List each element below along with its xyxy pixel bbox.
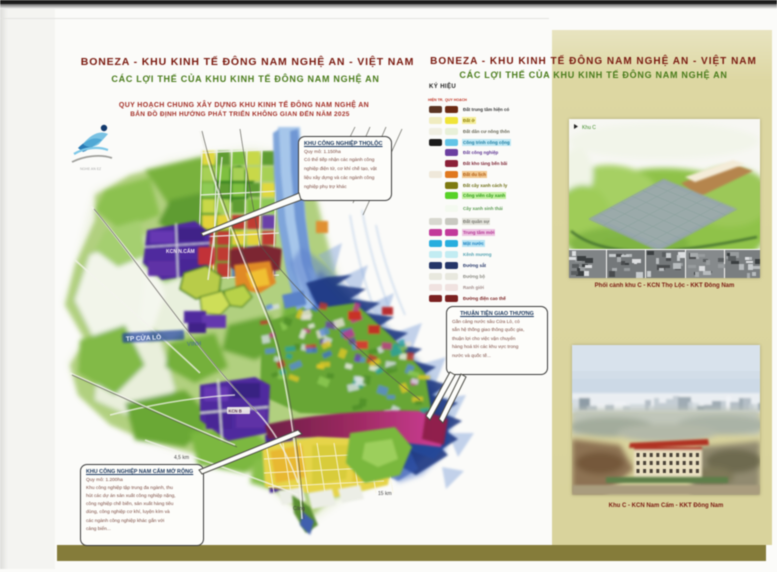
svg-text:Khu C: Khu C (582, 125, 596, 131)
svg-text:KCN B: KCN B (229, 409, 242, 414)
svg-text:VINH: VINH (187, 341, 202, 348)
svg-text:15 km: 15 km (378, 491, 392, 497)
svg-text:KCN N.CẤM: KCN N.CẤM (166, 248, 195, 255)
svg-text:4,5 km: 4,5 km (174, 455, 189, 461)
svg-text:Cảng: Cảng (293, 506, 305, 512)
svg-text:NGHE AN EZ: NGHE AN EZ (80, 167, 102, 171)
